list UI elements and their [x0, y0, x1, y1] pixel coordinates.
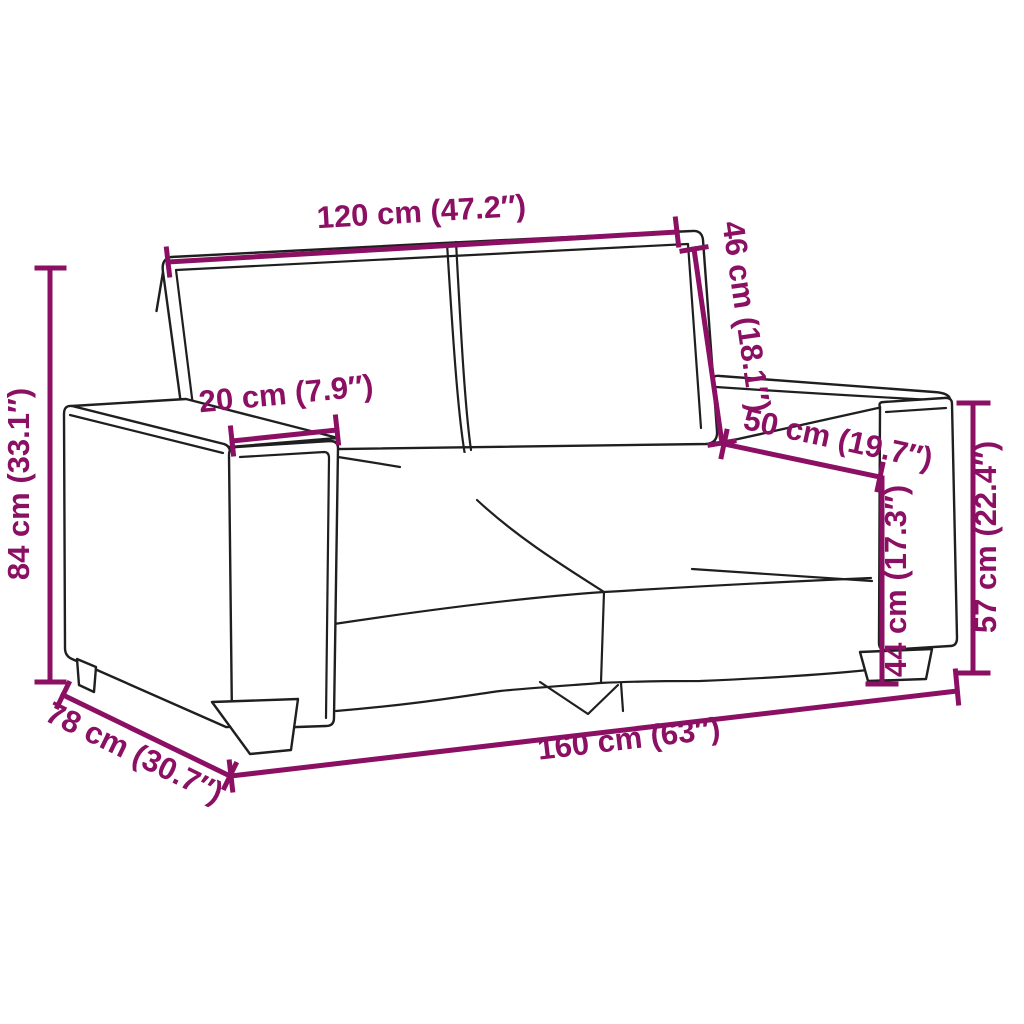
dimension-label-armrest-height: 57 cm (22.4″) [968, 441, 1003, 633]
dimension-total-height: 84 cm (33.1″) [1, 268, 64, 682]
sofa-line-drawing [64, 231, 957, 754]
dimension-tick [167, 249, 170, 275]
diagram-canvas: 120 cm (47.2″) 46 cm (18.1″) 20 cm (7.9″… [0, 0, 1024, 1024]
dimension-label-total-width: 160 cm (63″) [535, 710, 722, 766]
dimension-label-total-height: 84 cm (33.1″) [1, 388, 36, 580]
dimension-armrest-height: 57 cm (22.4″) [959, 403, 1003, 673]
dimension-tick [676, 219, 679, 245]
dimension-tick [956, 671, 959, 703]
left-armrest [64, 399, 338, 729]
sofa-dimension-diagram: 120 cm (47.2″) 46 cm (18.1″) 20 cm (7.9″… [0, 0, 1024, 1024]
dimension-label-seat-height: 44 cm (17.3″) [878, 485, 913, 677]
dimension-label-backrest-width: 120 cm (47.2″) [316, 188, 527, 235]
dimension-tick [229, 762, 232, 790]
dimension-tick [336, 417, 339, 443]
left-armrest-front-face [229, 441, 338, 729]
dimension-tick [231, 428, 234, 454]
